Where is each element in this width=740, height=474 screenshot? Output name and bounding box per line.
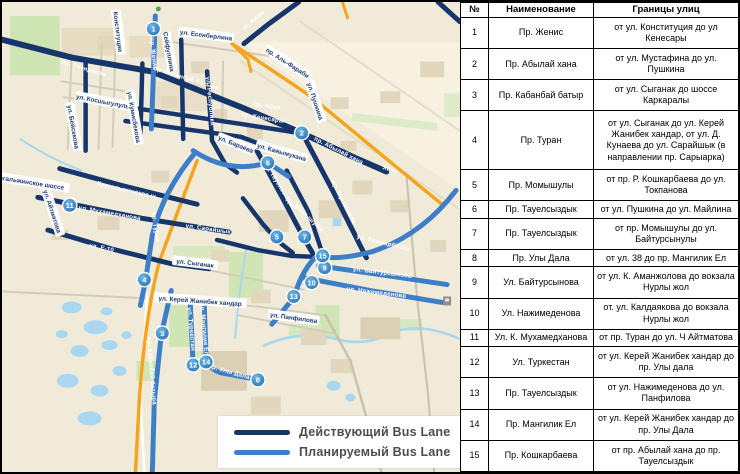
map-marker-4: 4	[137, 272, 151, 286]
railway-station-icon	[443, 296, 451, 305]
table-row: 11Ул. К. Мухамедхановаот пр. Туран до ул…	[461, 329, 739, 346]
road-label: ул. Байтурсынова	[353, 266, 413, 280]
svg-text:6: 6	[266, 158, 270, 167]
svg-text:11: 11	[66, 201, 74, 210]
map-canvas: пр. Тлендиева пр. Богенбай батыра ш. Ала…	[2, 2, 460, 472]
svg-text:14: 14	[202, 358, 211, 367]
map-marker-7: 7	[298, 230, 312, 244]
map-marker-1: 1	[146, 22, 160, 36]
svg-text:9: 9	[322, 263, 326, 272]
table-row: 9Ул. Байтурсыноваот ул. К. Аманжолова до…	[461, 267, 739, 298]
map-marker-10: 10	[304, 275, 318, 289]
table-row: 12Ул. Туркестанот ул. Керей Жанибек ханд…	[461, 347, 739, 378]
table-row: 14Пр. Мангилик Елот ул. Керей Жанибек ха…	[461, 409, 739, 440]
svg-text:2: 2	[300, 129, 304, 138]
poi-dot	[156, 6, 161, 11]
table-row: 2Пр. Абылай ханаот ул. Мустафина до ул. …	[461, 49, 739, 80]
active-lane-label: Действующий Bus Lane	[299, 425, 450, 439]
planned-lane-swatch	[234, 450, 290, 455]
legend-row-active: Действующий Bus Lane	[218, 425, 460, 439]
map-marker-15: 15	[315, 249, 329, 263]
infographic-frame: пр. Тлендиева пр. Богенбай батыра ш. Ала…	[0, 0, 740, 474]
legend: Действующий Bus Lane Планируемый Bus Lan…	[218, 416, 460, 468]
table-row: 10Ул. Нажимеденоваот. ул. Калдаякова до …	[461, 298, 739, 329]
col-header-bounds: Границы улиц	[594, 3, 739, 18]
svg-text:Коргальжинское шоссе: Коргальжинское шоссе	[2, 173, 65, 191]
svg-text:13: 13	[290, 292, 298, 301]
svg-text:15: 15	[318, 252, 326, 261]
svg-text:5: 5	[275, 233, 279, 242]
table-row: 1Пр. Женисот ул. Конституция до ул Кенес…	[461, 17, 739, 48]
table-row: 7Пр. Тауелсыздыкот пр. Момышулы до ул. Б…	[461, 218, 739, 249]
streets-table: № Наименование Границы улиц 1Пр. Женисот…	[460, 2, 739, 472]
map-marker-5: 5	[270, 230, 284, 244]
table-header-row: № Наименование Границы улиц	[461, 3, 739, 18]
table-row: 6Пр. Тауелсыздыкот ул. Пушкина до ул. Ма…	[461, 201, 739, 218]
street-label: Коргальжинское шоссе	[2, 170, 70, 193]
table-row: 8Пр. Улы Далаот ул. 38 до пр. Мангилик Е…	[461, 249, 739, 266]
map-marker-12: 12	[186, 358, 200, 372]
active-lane-swatch	[234, 430, 290, 435]
svg-text:7: 7	[303, 233, 307, 242]
map-marker-3: 3	[155, 326, 169, 340]
road-label: ул. Нажимеденова	[346, 286, 407, 300]
map-marker-8: 8	[251, 373, 265, 387]
bus-lane-table: № Наименование Границы улиц 1Пр. Женисот…	[460, 2, 738, 472]
col-header-name: Наименование	[489, 3, 594, 18]
table-row: 13Пр. Тауелсыздыкот ул. Нажимеденова до …	[461, 378, 739, 409]
road-label: пр. Абая	[253, 101, 282, 112]
map-marker-13: 13	[287, 289, 301, 303]
map-marker-11: 11	[63, 198, 77, 212]
street-label: ул. Косшыгулулы	[74, 91, 133, 112]
col-header-num: №	[461, 3, 489, 18]
table-row: 15Пр. Кошкарбаеваот пр. Абылай хана до п…	[461, 440, 739, 471]
buildings-layer	[52, 36, 446, 415]
svg-text:12: 12	[189, 361, 197, 370]
map-marker-14: 14	[199, 355, 213, 369]
map-marker-2: 2	[295, 126, 309, 140]
street-label: ул. Есенберлина	[178, 26, 235, 43]
svg-text:1: 1	[151, 24, 155, 33]
map-marker-6: 6	[261, 155, 275, 169]
svg-text:3: 3	[160, 329, 164, 338]
road-label: пр. Мангилик Ел	[198, 303, 210, 356]
road-label: ул. Е-10	[88, 242, 115, 254]
table-row: 4Пр. Туранот ул. Сыганак до ул. Керей Жа…	[461, 111, 739, 170]
table-row: 5Пр. Момышулыот пр. Р. Кошкарбаева до ул…	[461, 170, 739, 201]
bus-lane-map: пр. Тлендиева пр. Богенбай батыра ш. Ала…	[2, 2, 460, 472]
road-label: ул. Сарайшык	[185, 223, 232, 236]
planned-lane-label: Планируемый Bus Lane	[299, 445, 451, 459]
svg-text:8: 8	[256, 375, 260, 384]
svg-text:10: 10	[307, 278, 315, 287]
legend-row-planned: Планируемый Bus Lane	[218, 445, 460, 459]
table-row: 3Пр. Кабанбай батырот ул. Сыганак до шос…	[461, 80, 739, 111]
